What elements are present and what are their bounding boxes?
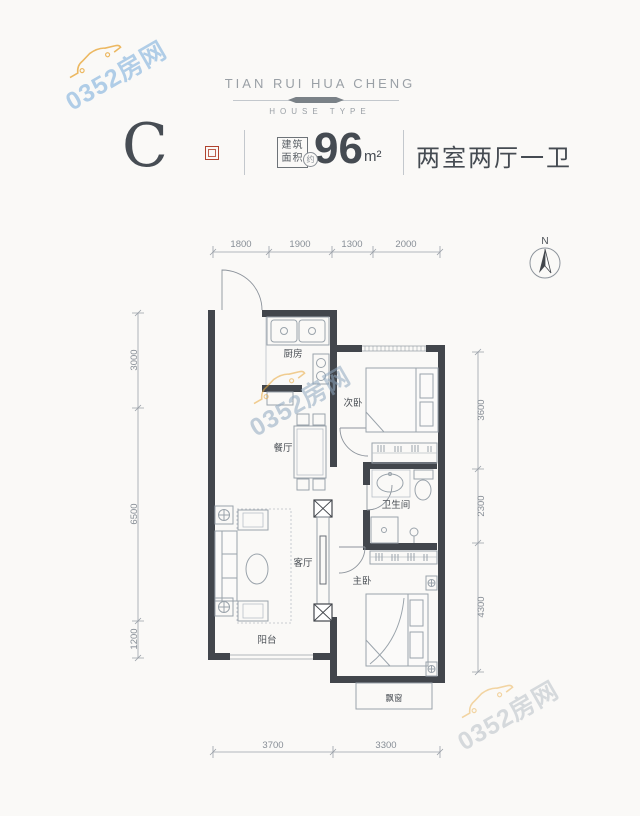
area-value: 96 — [314, 127, 363, 171]
master-furniture — [366, 551, 437, 676]
unit-layout-text: 两室两厅一卫 — [416, 138, 572, 173]
sofa-icon — [215, 510, 268, 621]
approx-badge: 约 — [303, 152, 318, 167]
bed-icon — [366, 368, 438, 432]
svg-text:3600: 3600 — [476, 399, 487, 420]
svg-text:1300: 1300 — [341, 239, 362, 250]
svg-text:1900: 1900 — [289, 239, 310, 250]
toilet-icon — [414, 470, 433, 500]
area-label-line2: 面积 — [282, 153, 304, 166]
project-name: TIAN RUI HUA CHENG — [0, 76, 640, 91]
sink-icon — [299, 320, 325, 342]
svg-text:2300: 2300 — [476, 495, 487, 516]
svg-text:1800: 1800 — [230, 239, 251, 250]
cabinet-icon — [267, 392, 293, 405]
shower-icon — [371, 517, 418, 543]
master-door — [339, 547, 365, 573]
header-subtitle: HOUSE TYPE — [0, 107, 640, 116]
room-label-bay-window: 飘窗 — [385, 693, 402, 703]
title-divider-1 — [244, 130, 245, 175]
room-label-dining: 餐厅 — [273, 442, 293, 454]
nightstand-icon — [426, 576, 437, 590]
bed-icon — [366, 594, 428, 666]
tv-wall — [314, 500, 332, 621]
bedroom2-furniture — [366, 368, 438, 463]
side-table-icon — [215, 506, 233, 524]
compass-north-label: N — [541, 236, 548, 247]
area-label-line1: 建筑 — [282, 140, 304, 153]
dimension-left: 3000 6500 1200 — [129, 310, 144, 661]
sink-icon — [271, 320, 297, 342]
dining-furniture — [294, 414, 326, 490]
room-label-living: 客厅 — [293, 557, 313, 569]
wardrobe-icon — [372, 443, 437, 463]
room-label-kitchen: 厨房 — [283, 348, 302, 360]
area-unit: m² — [364, 148, 382, 165]
tv-icon — [320, 536, 326, 584]
red-seal-icon — [205, 146, 219, 160]
room-label-bathroom: 卫生间 — [382, 499, 411, 511]
floor-plan-drawing: 飘窗 厨房 — [0, 0, 640, 816]
chair-icon — [313, 479, 325, 490]
dimension-bottom: 3700 3300 — [210, 740, 443, 758]
svg-text:4300: 4300 — [476, 596, 487, 617]
bedroom2-window — [362, 346, 426, 351]
svg-text:3300: 3300 — [375, 740, 396, 751]
unit-type-letter: C — [122, 116, 168, 176]
chair-icon — [297, 414, 309, 425]
bay-window: 飘窗 — [356, 683, 432, 709]
chair-icon — [313, 414, 325, 425]
floor-plan-page: 0352房网 0352房网 0352房网 TIAN RUI HUA CHENG … — [0, 0, 640, 816]
basin-icon — [377, 474, 403, 492]
svg-text:6500: 6500 — [129, 503, 140, 524]
svg-text:3000: 3000 — [129, 349, 140, 370]
header-divider — [233, 100, 399, 101]
dimension-right: 3600 2300 4300 — [472, 349, 487, 675]
title-divider-2 — [403, 130, 404, 175]
dining-table-icon — [294, 426, 326, 478]
dimension-top: 1800 1900 1300 2000 — [210, 239, 443, 258]
room-label-bedroom2: 次卧 — [343, 397, 363, 409]
svg-text:1200: 1200 — [129, 628, 140, 649]
room-label-master: 主卧 — [352, 575, 372, 587]
svg-text:3700: 3700 — [262, 740, 283, 751]
svg-text:2000: 2000 — [395, 239, 416, 250]
chair-icon — [297, 479, 309, 490]
wardrobe-icon — [370, 551, 437, 564]
compass-icon: N — [530, 236, 560, 278]
bedroom2-door — [340, 428, 368, 456]
rug-icon — [237, 509, 291, 623]
coffee-table-icon — [246, 554, 268, 584]
balcony-window — [230, 655, 313, 659]
tv-cabinet-icon — [317, 517, 329, 604]
room-label-balcony: 阳台 — [257, 634, 276, 646]
entry-door — [222, 270, 262, 310]
living-furniture — [215, 500, 332, 623]
